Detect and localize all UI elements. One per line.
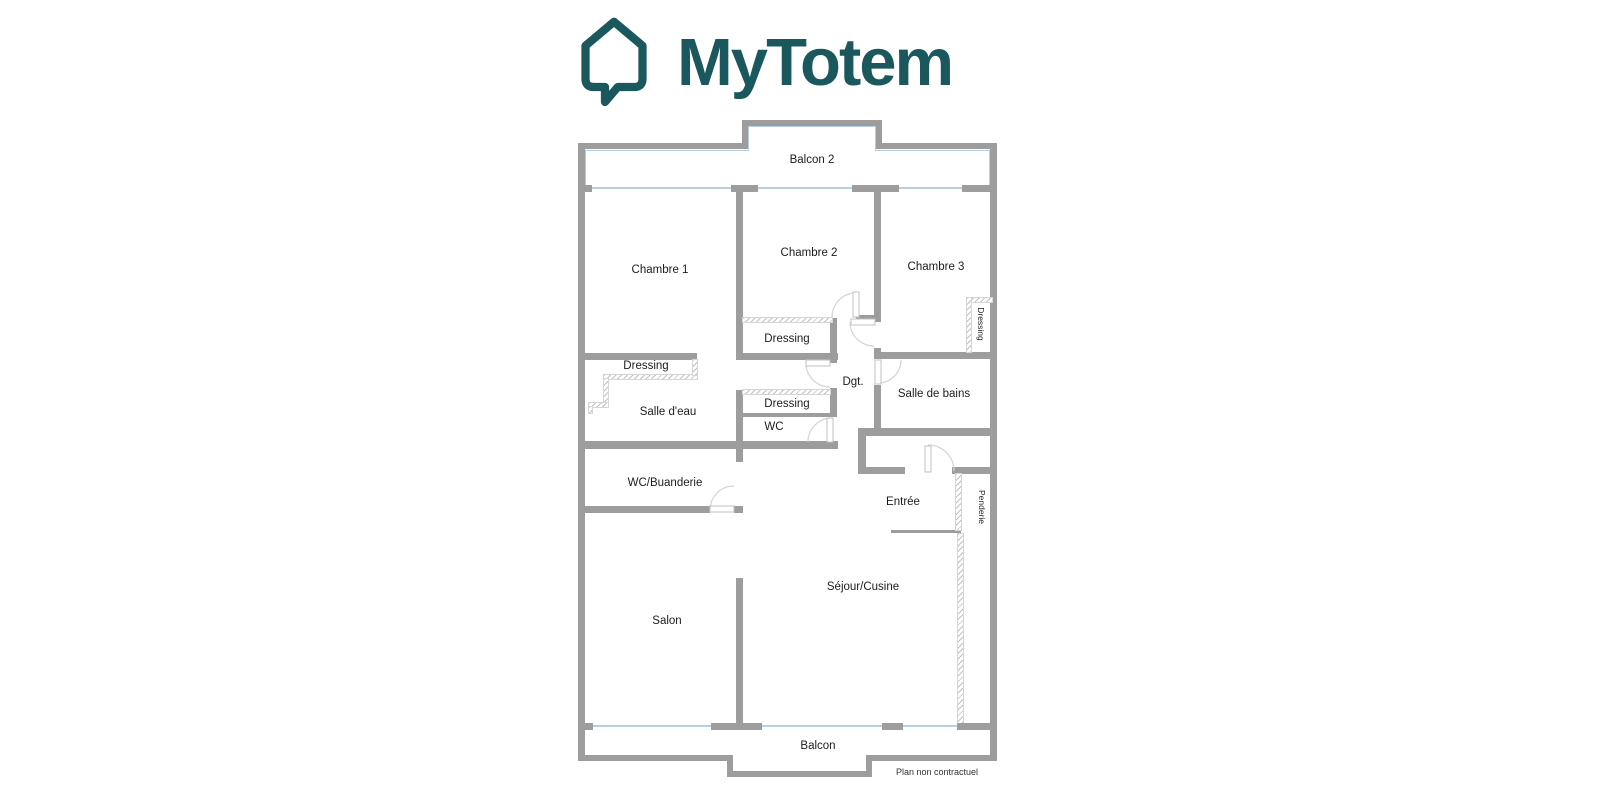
wall [830, 388, 837, 417]
closet-hatch [743, 390, 830, 394]
railing-line [748, 126, 749, 151]
room-label-dressing-wc: Dressing [764, 398, 809, 410]
wall [866, 755, 992, 761]
wall [874, 352, 992, 359]
room-label-dressing-chambre-2: Dressing [764, 333, 809, 345]
wall [856, 315, 877, 322]
wall [990, 143, 997, 761]
wall [952, 467, 990, 474]
wall [743, 353, 838, 360]
railing-line [585, 150, 586, 186]
room-label-entree: Entrée [886, 496, 920, 508]
closet-hatch [693, 360, 697, 375]
room-label-chambre-1: Chambre 1 [632, 264, 689, 276]
wall [858, 467, 905, 474]
closet-hatch [743, 318, 832, 322]
wall [578, 143, 748, 149]
room-label-chambre-3: Chambre 3 [908, 261, 965, 273]
wall [727, 771, 872, 777]
room-label-balcon: Balcon [800, 740, 835, 752]
closet-hatch [967, 298, 971, 352]
wall [882, 723, 903, 730]
wall [585, 441, 838, 449]
room-label-sejour-cuisine: Séjour/Cusine [827, 581, 899, 593]
room-label-chambre-2: Chambre 2 [781, 247, 838, 259]
closet-hatch [604, 379, 608, 406]
railing-line [989, 150, 990, 186]
railing-line [876, 150, 990, 151]
house-speech-bubble-icon [575, 13, 653, 113]
wall [578, 723, 593, 730]
wall [852, 185, 899, 192]
wall [858, 428, 992, 436]
wall [957, 723, 992, 730]
railing-line [748, 126, 876, 127]
room-label-penderie: Penderie [977, 490, 987, 524]
page: { "logo": { "brand": "MyTotem", "icon": … [0, 0, 1600, 800]
room-label-balcon-2: Balcon 2 [790, 154, 835, 166]
wall [876, 143, 992, 149]
wall [736, 192, 743, 360]
room-label-degagement: Dgt. [842, 376, 863, 388]
wall [731, 185, 758, 192]
closet-hatch [956, 474, 961, 530]
window [758, 187, 852, 189]
wall [736, 449, 743, 462]
room-label-wc: WC [764, 421, 783, 433]
wall [736, 578, 743, 723]
wall [743, 413, 830, 417]
wall [711, 723, 762, 730]
room-label-salle-de-bains: Salle de bains [898, 388, 970, 400]
room-label-salle-deau: Salle d'eau [640, 406, 697, 418]
wall [585, 353, 697, 360]
room-label-dressing-chambre-3: Dressing [976, 307, 986, 341]
wall [874, 192, 881, 322]
wall [578, 755, 733, 761]
window [762, 725, 882, 727]
room-label-salon: Salon [652, 615, 681, 627]
railing-line [585, 150, 748, 151]
wall [891, 530, 961, 533]
room-label-dressing-salle-deau: Dressing [623, 360, 668, 372]
room-label-wc-buanderie: WC/Buanderie [628, 477, 703, 489]
partition-hatch [958, 534, 963, 723]
wall [585, 506, 710, 513]
wall [578, 185, 592, 192]
wall [962, 185, 992, 192]
window [593, 725, 711, 727]
closet-hatch [589, 407, 592, 413]
plan-disclaimer: Plan non contractuel [896, 767, 978, 777]
wall [578, 143, 585, 761]
window [592, 187, 731, 189]
brand-name: MyTotem [677, 12, 952, 114]
wall [734, 506, 743, 513]
window [899, 187, 962, 189]
railing-line [875, 126, 876, 151]
window [903, 725, 957, 727]
closet-hatch [604, 375, 697, 379]
logo: MyTotem [575, 12, 952, 114]
